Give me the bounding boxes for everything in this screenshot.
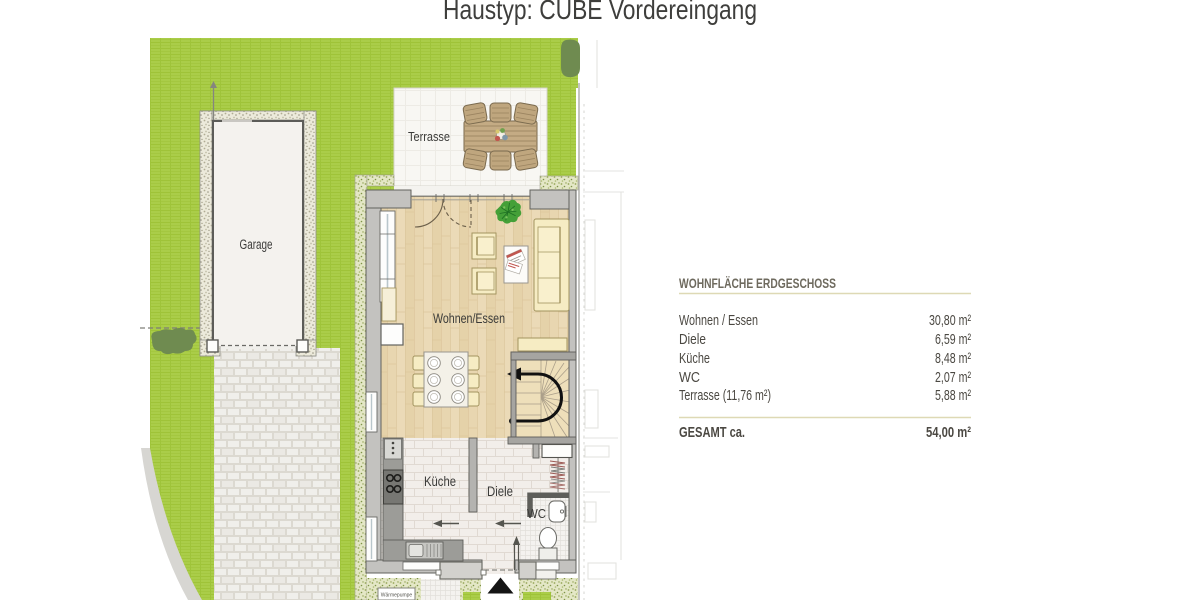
svg-text:Haustyp: CUBE Vordereingang: Haustyp: CUBE Vordereingang	[443, 0, 757, 25]
svg-text:GESAMT ca.: GESAMT ca.	[679, 424, 745, 441]
svg-text:Diele: Diele	[487, 484, 513, 499]
svg-text:Küche: Küche	[424, 474, 456, 489]
svg-text:Wärmepumpe: Wärmepumpe	[381, 593, 413, 599]
svg-text:WC: WC	[679, 369, 700, 386]
svg-text:Terrasse: Terrasse	[408, 129, 450, 144]
svg-text:Diele: Diele	[679, 331, 706, 348]
svg-text:54,00 m²: 54,00 m²	[926, 424, 971, 441]
svg-text:8,48 m²: 8,48 m²	[935, 350, 971, 367]
svg-text:Küche: Küche	[679, 350, 710, 367]
svg-text:2,07 m²: 2,07 m²	[935, 369, 971, 386]
svg-text:30,80 m²: 30,80 m²	[929, 312, 971, 329]
svg-text:WOHNFLÄCHE ERDGESCHOSS: WOHNFLÄCHE ERDGESCHOSS	[679, 275, 836, 291]
svg-text:Wohnen/Essen: Wohnen/Essen	[433, 311, 505, 326]
svg-text:Wohnen / Essen: Wohnen / Essen	[679, 312, 758, 329]
svg-text:WC: WC	[527, 506, 546, 521]
svg-text:5,88 m²: 5,88 m²	[935, 387, 971, 404]
svg-text:Garage: Garage	[240, 237, 273, 252]
svg-text:Terrasse (11,76 m²): Terrasse (11,76 m²)	[679, 387, 771, 404]
svg-text:6,59 m²: 6,59 m²	[935, 331, 971, 348]
